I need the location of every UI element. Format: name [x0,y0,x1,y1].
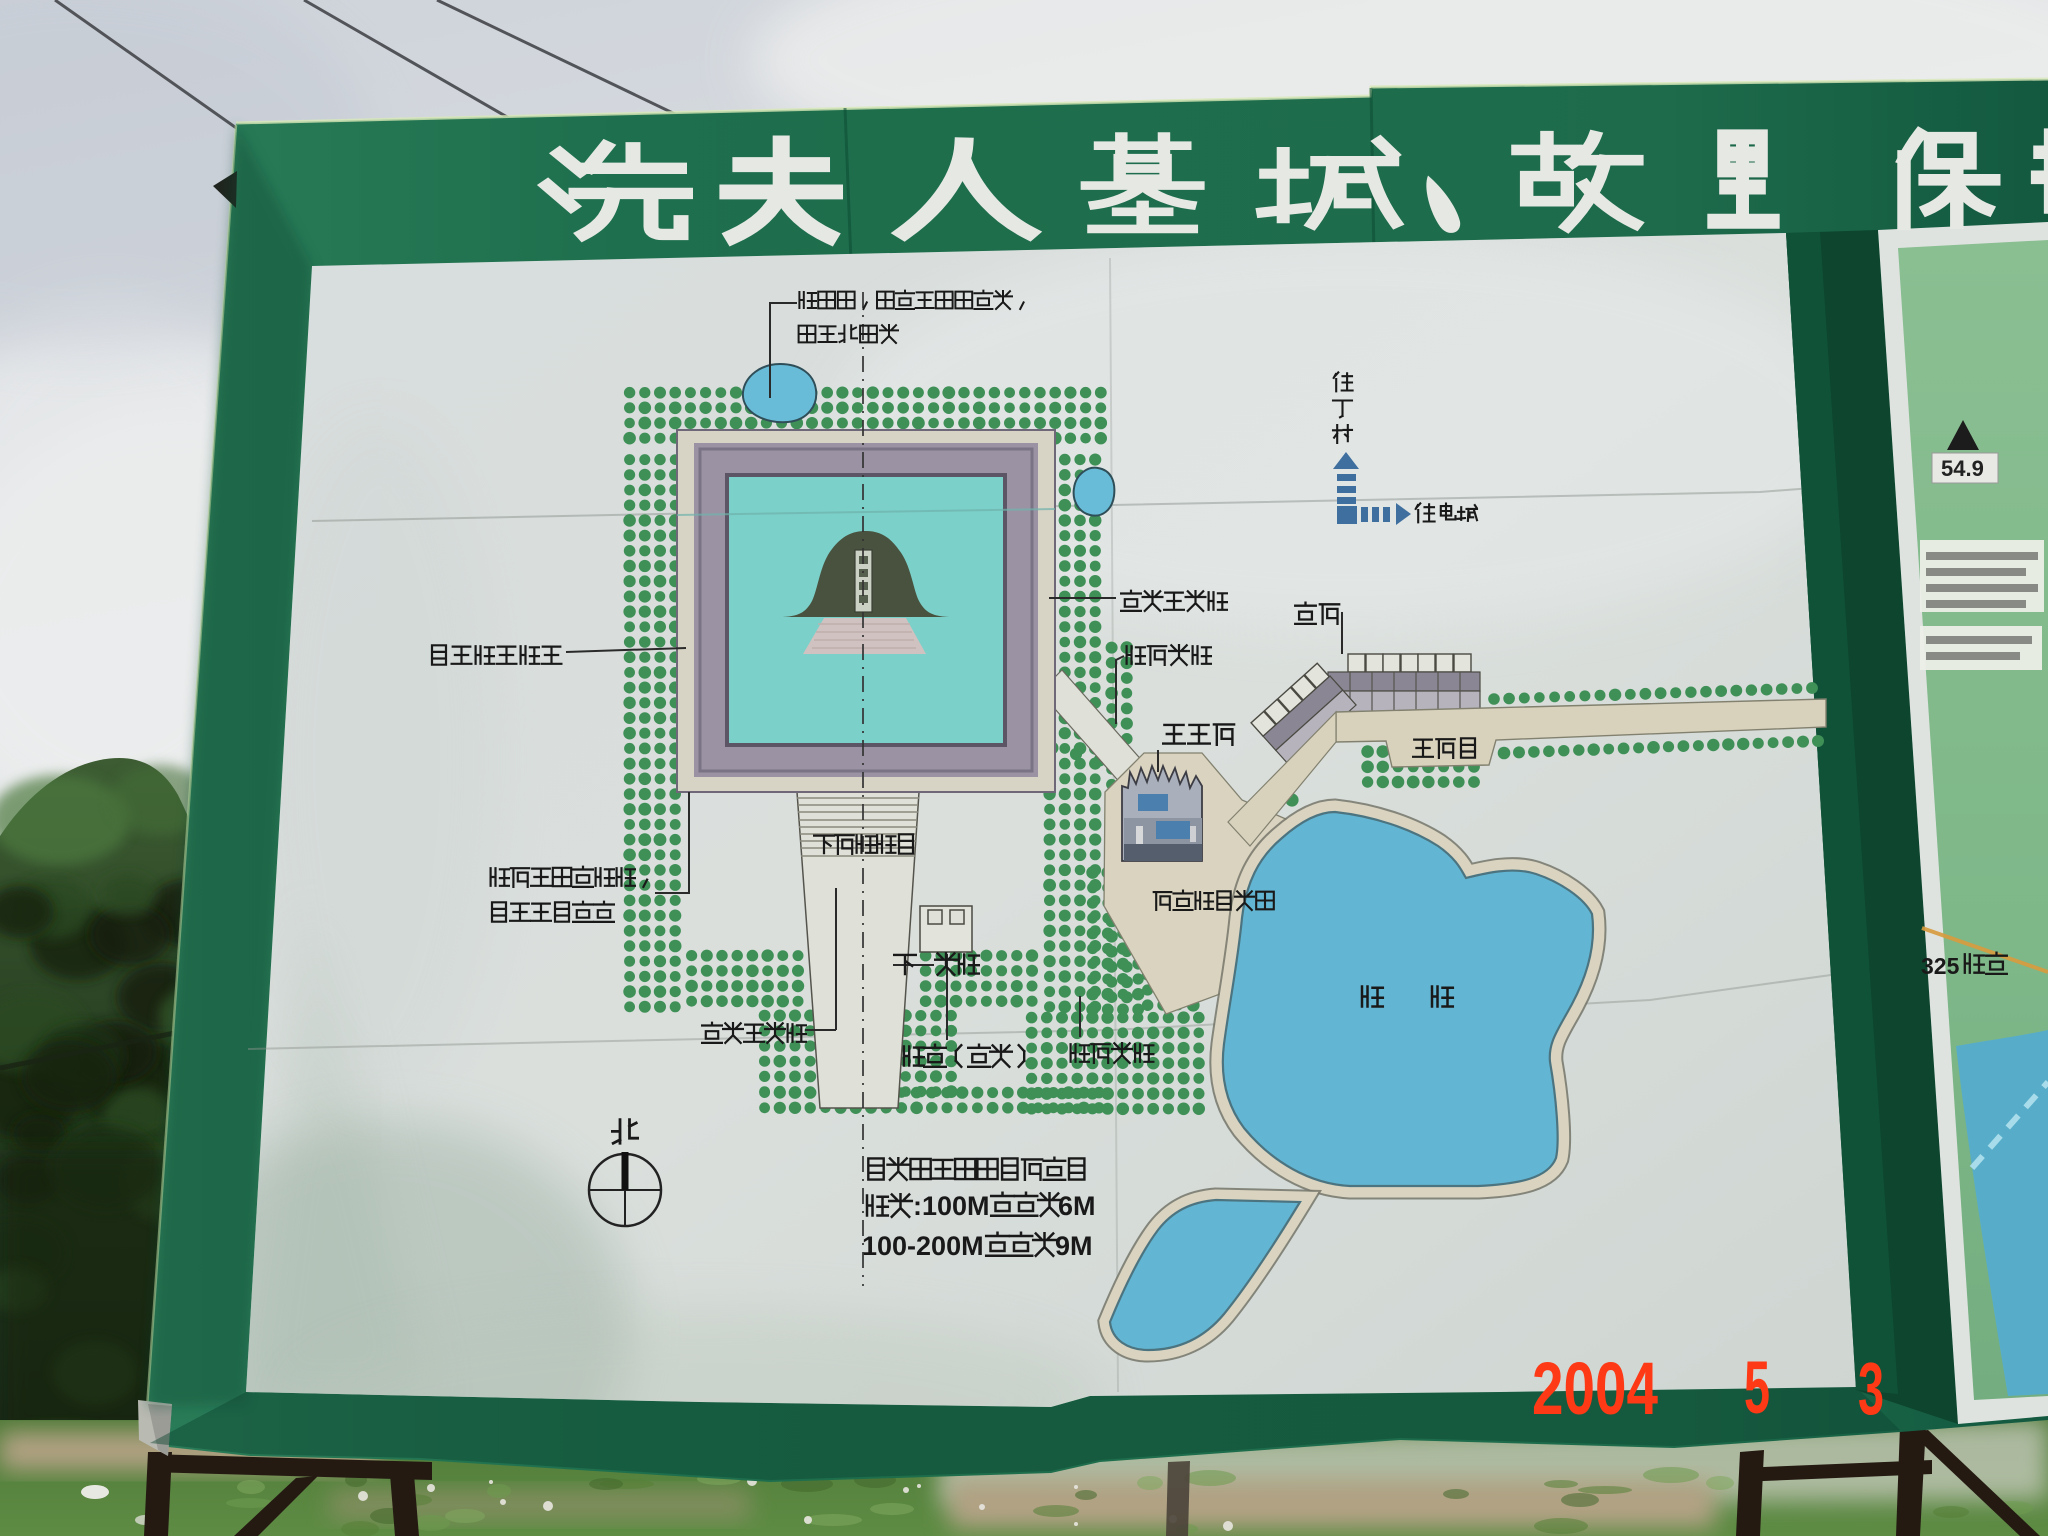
svg-text:54.9: 54.9 [1941,456,1984,481]
svg-text:6M: 6M [1058,1191,1096,1221]
svg-text:325: 325 [1921,953,1960,979]
svg-text:3: 3 [1858,1347,1884,1430]
svg-text:5: 5 [1744,1346,1770,1429]
svg-text::100M: :100M [913,1191,990,1221]
svg-text:9M: 9M [1055,1231,1093,1261]
svg-text:100-200M: 100-200M [862,1231,984,1261]
svg-text:2004: 2004 [1532,1347,1658,1430]
